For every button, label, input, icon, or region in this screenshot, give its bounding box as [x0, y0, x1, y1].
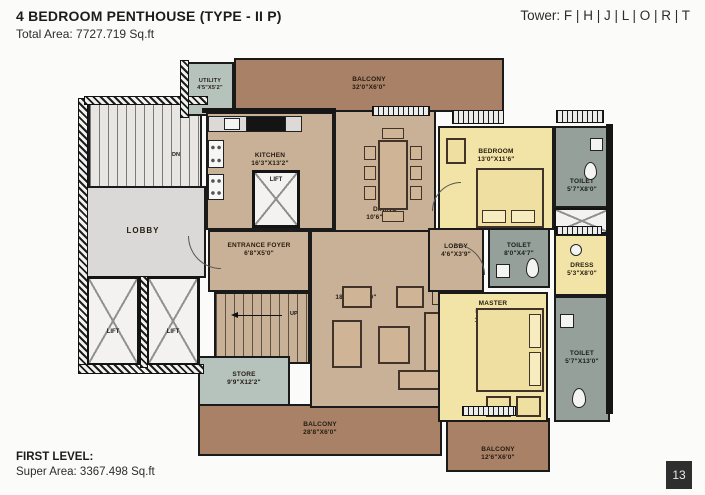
- stool: [570, 244, 582, 256]
- room-store: STORE 9'9"X12'2": [198, 356, 290, 406]
- room-label: TOILET: [556, 350, 608, 358]
- hatch-wall-utility: [180, 60, 189, 118]
- hatch-wall-top: [84, 96, 208, 105]
- super-area-text: Super Area: 3367.498 Sq.ft: [16, 466, 155, 478]
- room-label: LOBBY: [82, 226, 204, 236]
- door-arc: [432, 182, 461, 211]
- kitchen-range: [246, 116, 286, 132]
- lift-shaft-right: LIFT: [146, 276, 200, 366]
- room-dims: 8'0"X4'7": [490, 250, 548, 258]
- pillow: [529, 314, 541, 348]
- room-label: STORE: [200, 371, 288, 379]
- total-area-text: Total Area: 7727.719 Sq.ft: [16, 27, 154, 41]
- wc: [584, 162, 597, 180]
- stair-up-label: UP: [290, 311, 298, 317]
- dining-table: [378, 140, 408, 210]
- room-label: BALCONY: [236, 76, 502, 84]
- room-lobby-common: LOBBY: [80, 186, 206, 278]
- brochure-page: 4 BEDROOM PENTHOUSE (TYPE - II P) Total …: [0, 0, 705, 495]
- pillow: [482, 210, 506, 223]
- room-dims: 5'3"X8'0": [556, 270, 608, 278]
- dining-chair: [364, 186, 376, 200]
- up-arrow-icon: [238, 315, 282, 316]
- room-label: KITCHEN: [208, 152, 332, 160]
- room-dims: 6'8"X5'0": [226, 250, 292, 258]
- dining-chair: [382, 211, 404, 222]
- dining-chair: [410, 146, 422, 160]
- washbasin: [590, 138, 603, 151]
- room-dress: DRESS 5'3"X8'0": [554, 234, 610, 296]
- pillow: [529, 352, 541, 386]
- room-balcony-top: BALCONY 32'0"X6'0": [234, 58, 504, 112]
- dining-chair: [364, 166, 376, 180]
- room-dims: 9'9"X12'2": [200, 379, 288, 387]
- room-dims: 32'0"X6'0": [236, 84, 502, 92]
- window: [556, 226, 602, 235]
- lift-shaft-kitchen: LIFT: [252, 170, 300, 228]
- lift-label: LIFT: [149, 329, 197, 335]
- room-label: TOILET: [556, 178, 608, 186]
- sofa-left: [332, 320, 362, 368]
- stair-dn-label: DN: [172, 152, 180, 158]
- wall-right: [606, 124, 613, 414]
- room-entrance-foyer: ENTRANCE FOYER 6'8"X5'0": [208, 230, 310, 292]
- internal-staircase: UP: [214, 292, 310, 364]
- room-dims: 28'8"X6'0": [200, 429, 440, 437]
- room-label: DRESS: [556, 262, 608, 270]
- wall-kitchen-top: [202, 108, 336, 113]
- room-balcony-bottom: BALCONY 28'8"X6'0": [198, 404, 442, 456]
- room-label: BALCONY: [200, 421, 440, 429]
- dresser: [446, 138, 466, 164]
- level-label: FIRST LEVEL:: [16, 451, 93, 463]
- chair: [516, 396, 541, 417]
- kitchen-hob: [208, 140, 224, 168]
- room-dims: 16'3"X13'2": [208, 160, 332, 168]
- armchair: [396, 286, 424, 308]
- hatch-wall-left: [78, 98, 88, 374]
- wc: [572, 388, 586, 408]
- lift-label: LIFT: [89, 329, 137, 335]
- kitchen-hob-2: [208, 174, 224, 200]
- hatch-wall-lift-divider: [140, 276, 148, 368]
- lift-shaft-left: LIFT: [86, 276, 140, 366]
- dining-chair: [364, 146, 376, 160]
- washbasin: [560, 314, 574, 328]
- room-dims: 12'6"X6'0": [448, 454, 548, 462]
- room-balcony-master: BALCONY 12'6"X6'0": [446, 418, 550, 472]
- room-label: TOILET: [490, 242, 548, 250]
- page-number-badge: 13: [666, 461, 692, 489]
- room-dims: 5'7"X8'0": [556, 186, 608, 194]
- page-title: 4 BEDROOM PENTHOUSE (TYPE - II P): [16, 8, 282, 24]
- window: [556, 110, 604, 123]
- window: [462, 406, 516, 416]
- coffee-table: [378, 326, 410, 364]
- room-label: UTILITY: [188, 78, 232, 85]
- window: [452, 110, 504, 124]
- room-dims: 4'5"X5'2": [188, 85, 232, 92]
- lift-label: LIFT: [255, 177, 297, 183]
- dining-chair: [382, 128, 404, 139]
- room-dims: 5'7"X13'0": [556, 358, 608, 366]
- armchair: [342, 286, 372, 308]
- tower-list: Tower: F | H | J | L | O | R | T: [520, 8, 690, 23]
- dining-chair: [410, 186, 422, 200]
- room-label: BALCONY: [448, 446, 548, 454]
- window: [372, 106, 430, 116]
- wc: [526, 258, 539, 278]
- kitchen-sink: [224, 118, 240, 130]
- room-label: ENTRANCE FOYER: [226, 242, 292, 250]
- dining-chair: [410, 166, 422, 180]
- washbasin: [496, 264, 510, 278]
- room-toilet-master-upper: TOILET 8'0"X4'7": [488, 228, 550, 288]
- pillow: [511, 210, 535, 223]
